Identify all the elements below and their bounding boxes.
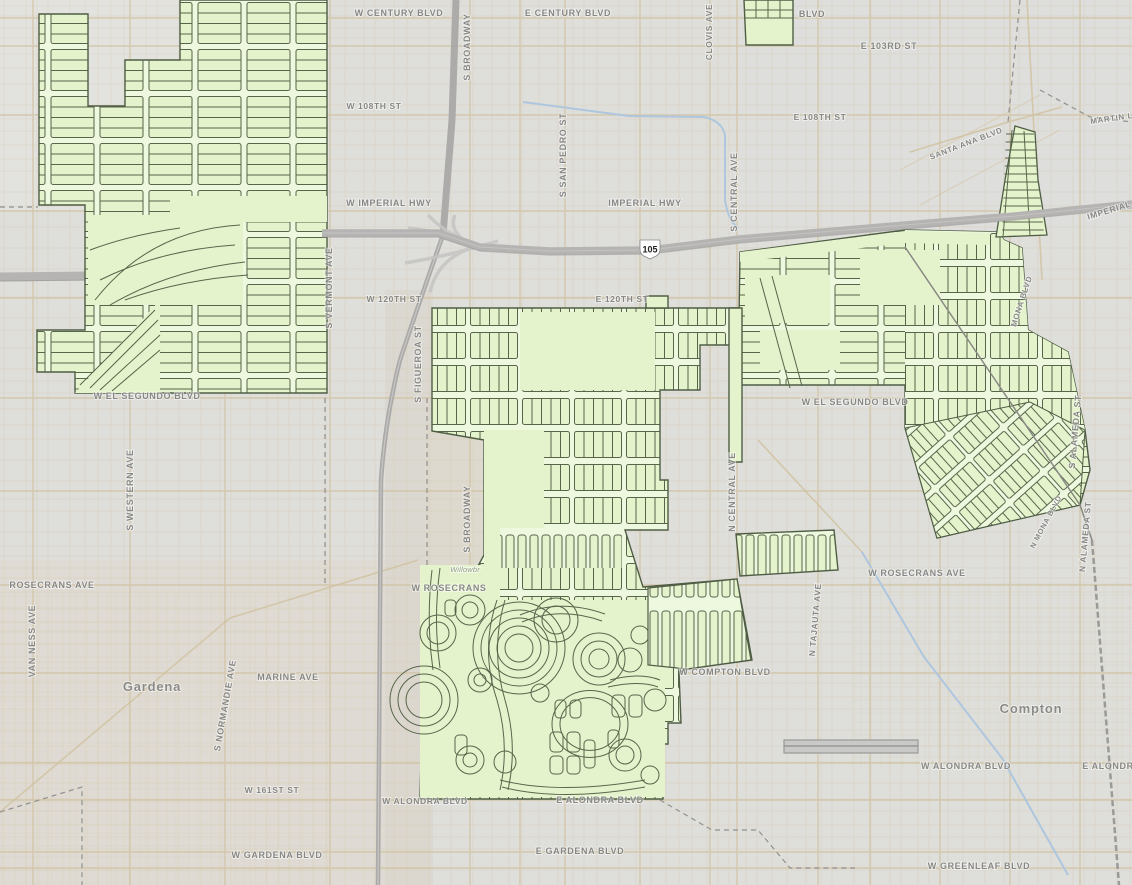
svg-text:W IMPERIAL HWY: W IMPERIAL HWY [346, 198, 432, 208]
svg-text:W GREENLEAF BLVD: W GREENLEAF BLVD [928, 861, 1030, 871]
svg-text:ROSECRANS AVE: ROSECRANS AVE [9, 580, 94, 590]
svg-text:E 120TH ST: E 120TH ST [596, 294, 649, 304]
svg-text:S VERMONT AVE: S VERMONT AVE [324, 247, 334, 328]
svg-text:S CENTRAL AVE: S CENTRAL AVE [729, 152, 739, 231]
svg-text:Gardena: Gardena [123, 679, 181, 694]
svg-text:W ALONDRA BLVD: W ALONDRA BLVD [921, 761, 1011, 771]
svg-text:W ROSECRANS AVE: W ROSECRANS AVE [868, 568, 966, 578]
svg-text:CLOVIS AVE: CLOVIS AVE [704, 4, 714, 61]
svg-text:W CENTURY BLVD: W CENTURY BLVD [355, 8, 444, 18]
svg-text:W EL SEGUNDO BLVD: W EL SEGUNDO BLVD [94, 391, 201, 401]
svg-text:E ALONDR: E ALONDR [1082, 761, 1132, 771]
svg-text:S WESTERN AVE: S WESTERN AVE [125, 449, 135, 530]
svg-text:VAN NESS AVE: VAN NESS AVE [27, 605, 37, 678]
svg-text:MARINE AVE: MARINE AVE [257, 672, 319, 682]
svg-text:W 108TH ST: W 108TH ST [346, 101, 401, 111]
svg-text:105: 105 [642, 245, 657, 255]
svg-text:E GARDENA BLVD: E GARDENA BLVD [536, 846, 624, 856]
svg-text:E CENTURY BLVD: E CENTURY BLVD [525, 8, 611, 18]
svg-text:S BROADWAY: S BROADWAY [462, 13, 472, 80]
svg-text:W ROSECRANS: W ROSECRANS [411, 583, 486, 593]
svg-text:Willowbr: Willowbr [450, 565, 480, 574]
svg-text:E 103RD ST: E 103RD ST [861, 41, 918, 51]
svg-text:W COMPTON BLVD: W COMPTON BLVD [679, 667, 771, 677]
svg-text:W 161ST ST: W 161ST ST [245, 785, 300, 795]
svg-text:W EL SEGUNDO BLVD: W EL SEGUNDO BLVD [802, 397, 909, 407]
svg-text:S BROADWAY: S BROADWAY [462, 485, 472, 552]
svg-text:W 120TH ST: W 120TH ST [366, 294, 421, 304]
svg-text:E 108TH ST: E 108TH ST [794, 112, 847, 122]
svg-text:S FIGUEROA ST: S FIGUEROA ST [413, 325, 423, 402]
svg-text:S SAN PEDRO ST: S SAN PEDRO ST [558, 113, 568, 197]
svg-text:N CENTRAL AVE: N CENTRAL AVE [727, 452, 737, 532]
svg-text:W ALONDRA BLVD: W ALONDRA BLVD [382, 796, 468, 806]
svg-text:W GARDENA BLVD: W GARDENA BLVD [232, 850, 323, 860]
svg-text:Compton: Compton [1000, 701, 1063, 716]
svg-text:E ALONDRA BLVD: E ALONDRA BLVD [556, 795, 644, 805]
svg-text:BLVD: BLVD [799, 9, 825, 19]
svg-text:IMPERIAL HWY: IMPERIAL HWY [608, 198, 682, 208]
